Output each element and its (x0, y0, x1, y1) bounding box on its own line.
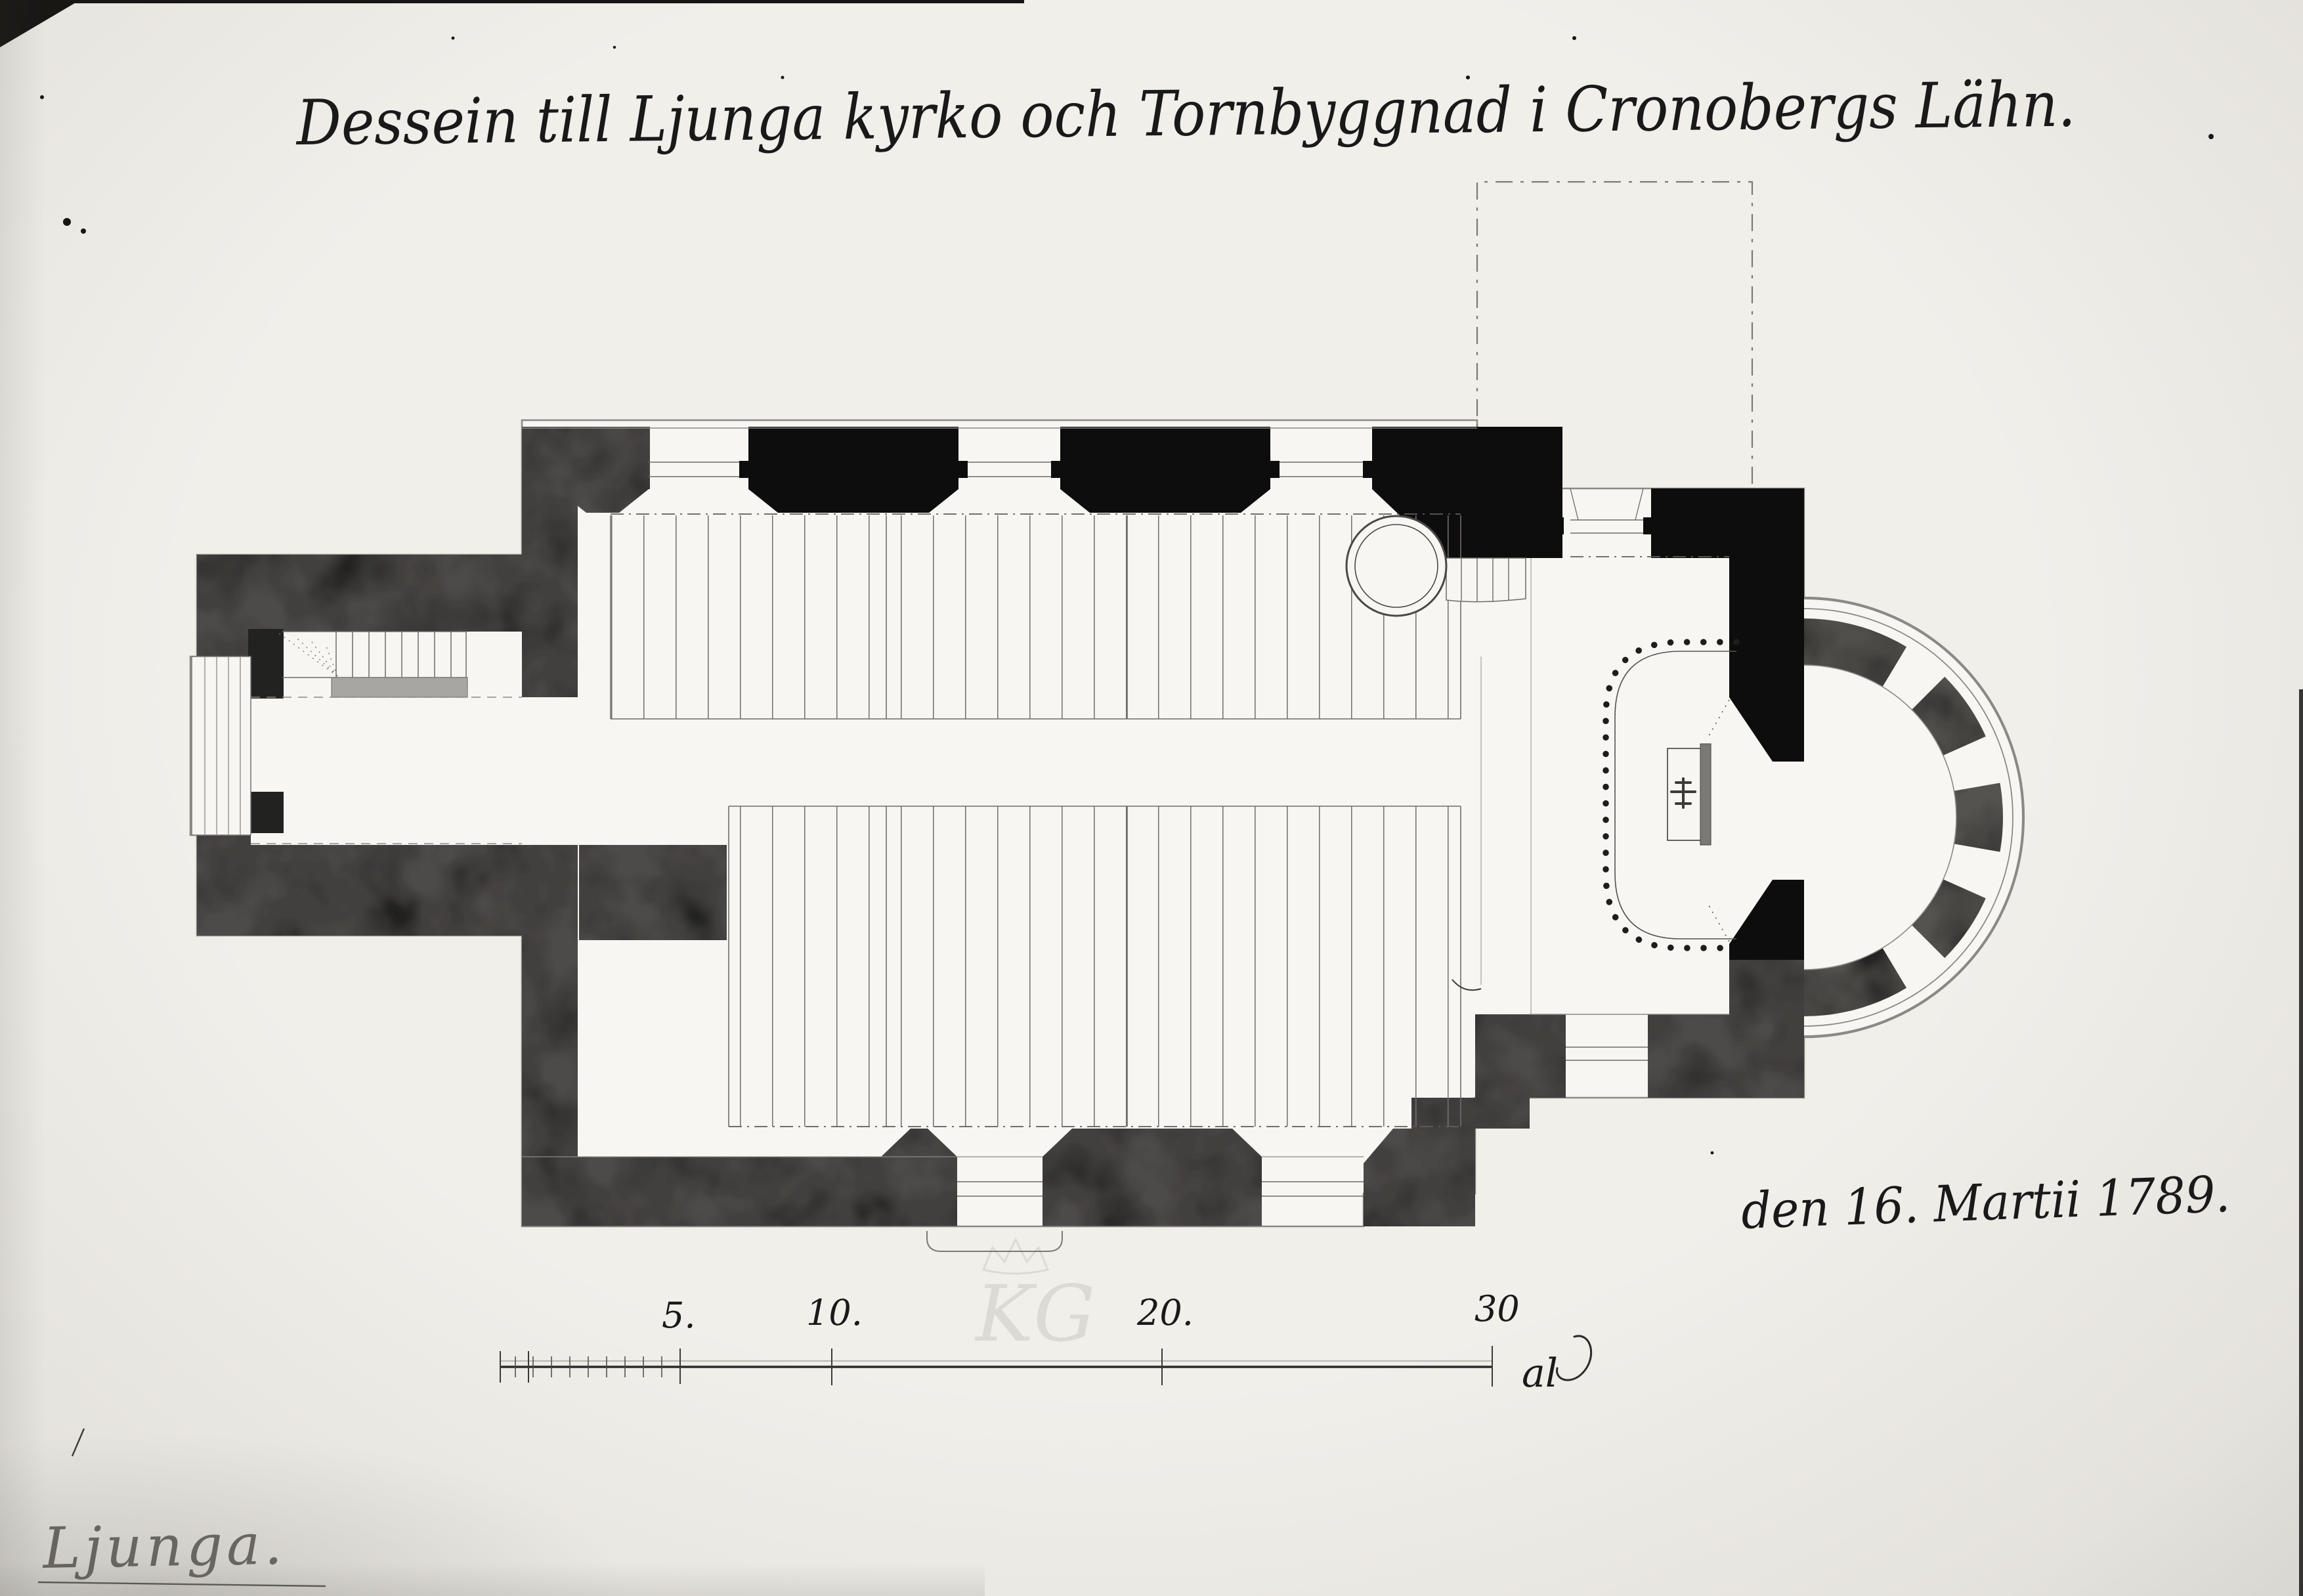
tower-se-pier (248, 792, 284, 833)
date-inscription: den 16. Martii 1789. (1740, 1165, 2231, 1240)
title-inscription: Dessein till Ljunga kyrko och Tornbyggna… (295, 69, 2076, 160)
tower-south-wall (197, 845, 578, 936)
place-label-underline (38, 1582, 326, 1586)
tower-north-wall (197, 555, 578, 632)
chancel-se-wall (1729, 959, 1804, 1014)
altar-table (1668, 748, 1706, 840)
altar-cross (1671, 779, 1695, 808)
corner-wedge (0, 0, 80, 47)
scale-unit-label: al (1522, 1350, 1558, 1396)
pulpit-body-outer (1346, 516, 1446, 616)
altar-mensa (1700, 744, 1711, 845)
drawing-sheet: 5. 10. 20. 30 al Dessein till Ljunga kyr… (0, 0, 2303, 1596)
watermark-letters: KG (974, 1268, 1095, 1359)
scale-label-10: 10. (806, 1292, 863, 1333)
scale-label-5: 5. (662, 1295, 696, 1336)
nave-sw-interior-pier (579, 845, 727, 940)
upper-pew-block (611, 515, 1461, 719)
west-entrance-steps (192, 657, 251, 835)
south-pier-2 (1043, 1129, 1262, 1226)
watermark-monogram: KG (974, 1240, 1095, 1359)
lower-pew-block (729, 806, 1461, 1127)
chancel-south-wall-west (1530, 1014, 1566, 1098)
chancel-arch-south-jamb (1475, 1014, 1530, 1129)
stair-landing (332, 678, 467, 697)
scale-label-20: 20. (1136, 1292, 1194, 1333)
tower-west-wall-upper (197, 632, 251, 657)
scale-unit-flourish (1557, 1336, 1591, 1380)
pulpit-stair (1446, 558, 1526, 602)
north-pier-2 (1060, 427, 1270, 513)
scale-label-30: 30 (1474, 1288, 1520, 1329)
chancel-south-wall-east (1648, 1014, 1804, 1098)
place-label: Ljunga. (41, 1512, 287, 1582)
tower-ne-pier (248, 629, 284, 699)
floor-plan-svg: 5. 10. 20. 30 al Dessein till Ljunga kyr… (0, 0, 2303, 1596)
nave-south-wall-west (522, 1157, 881, 1226)
north-pier-1 (748, 427, 958, 513)
north-gray-pier (557, 427, 649, 513)
